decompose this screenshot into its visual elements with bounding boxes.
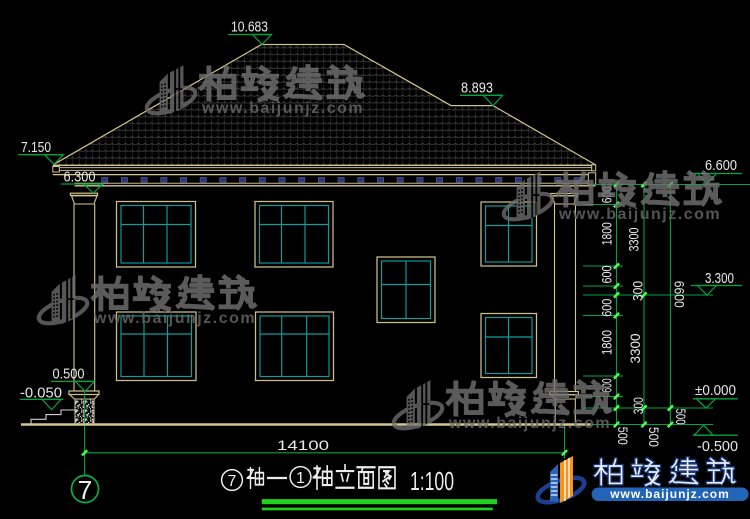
svg-text:-0.500: -0.500 — [697, 439, 738, 455]
svg-text:500: 500 — [673, 409, 689, 425]
svg-text:www.baijunjz.com: www.baijunjz.com — [609, 487, 730, 501]
svg-text:500: 500 — [646, 427, 662, 447]
svg-text:3.300: 3.300 — [705, 271, 734, 287]
svg-text:1800: 1800 — [599, 330, 615, 355]
svg-text:300: 300 — [630, 397, 646, 414]
svg-text:500: 500 — [615, 427, 631, 445]
svg-text:www.baijunjz.com: www.baijunjz.com — [201, 100, 364, 117]
svg-text:600: 600 — [599, 265, 615, 283]
svg-text:6600: 6600 — [672, 281, 688, 308]
svg-text:1: 1 — [296, 470, 305, 487]
svg-text:1:100: 1:100 — [410, 466, 454, 496]
svg-text:600: 600 — [599, 299, 615, 317]
svg-text:www.baijunjz.com: www.baijunjz.com — [558, 206, 721, 223]
svg-text:±0.000: ±0.000 — [695, 383, 736, 399]
svg-text:7: 7 — [228, 473, 237, 490]
svg-text:0.500: 0.500 — [53, 367, 85, 383]
svg-text:10.683: 10.683 — [231, 20, 268, 36]
svg-text:3300: 3300 — [627, 333, 643, 363]
svg-text:-0.050: -0.050 — [20, 385, 62, 401]
svg-text:6.600: 6.600 — [705, 158, 737, 174]
svg-text:7: 7 — [78, 475, 92, 505]
svg-text:1800: 1800 — [599, 222, 615, 245]
svg-text:300: 300 — [630, 281, 646, 301]
svg-text:www.baijunjz.com: www.baijunjz.com — [93, 310, 256, 327]
svg-text:www.baijunjz.com: www.baijunjz.com — [448, 415, 611, 432]
svg-text:14100: 14100 — [277, 438, 329, 453]
svg-text:8.893: 8.893 — [461, 81, 493, 97]
svg-text:6.300: 6.300 — [64, 169, 96, 185]
svg-text:7.150: 7.150 — [21, 140, 51, 156]
svg-text:3300: 3300 — [626, 227, 642, 251]
